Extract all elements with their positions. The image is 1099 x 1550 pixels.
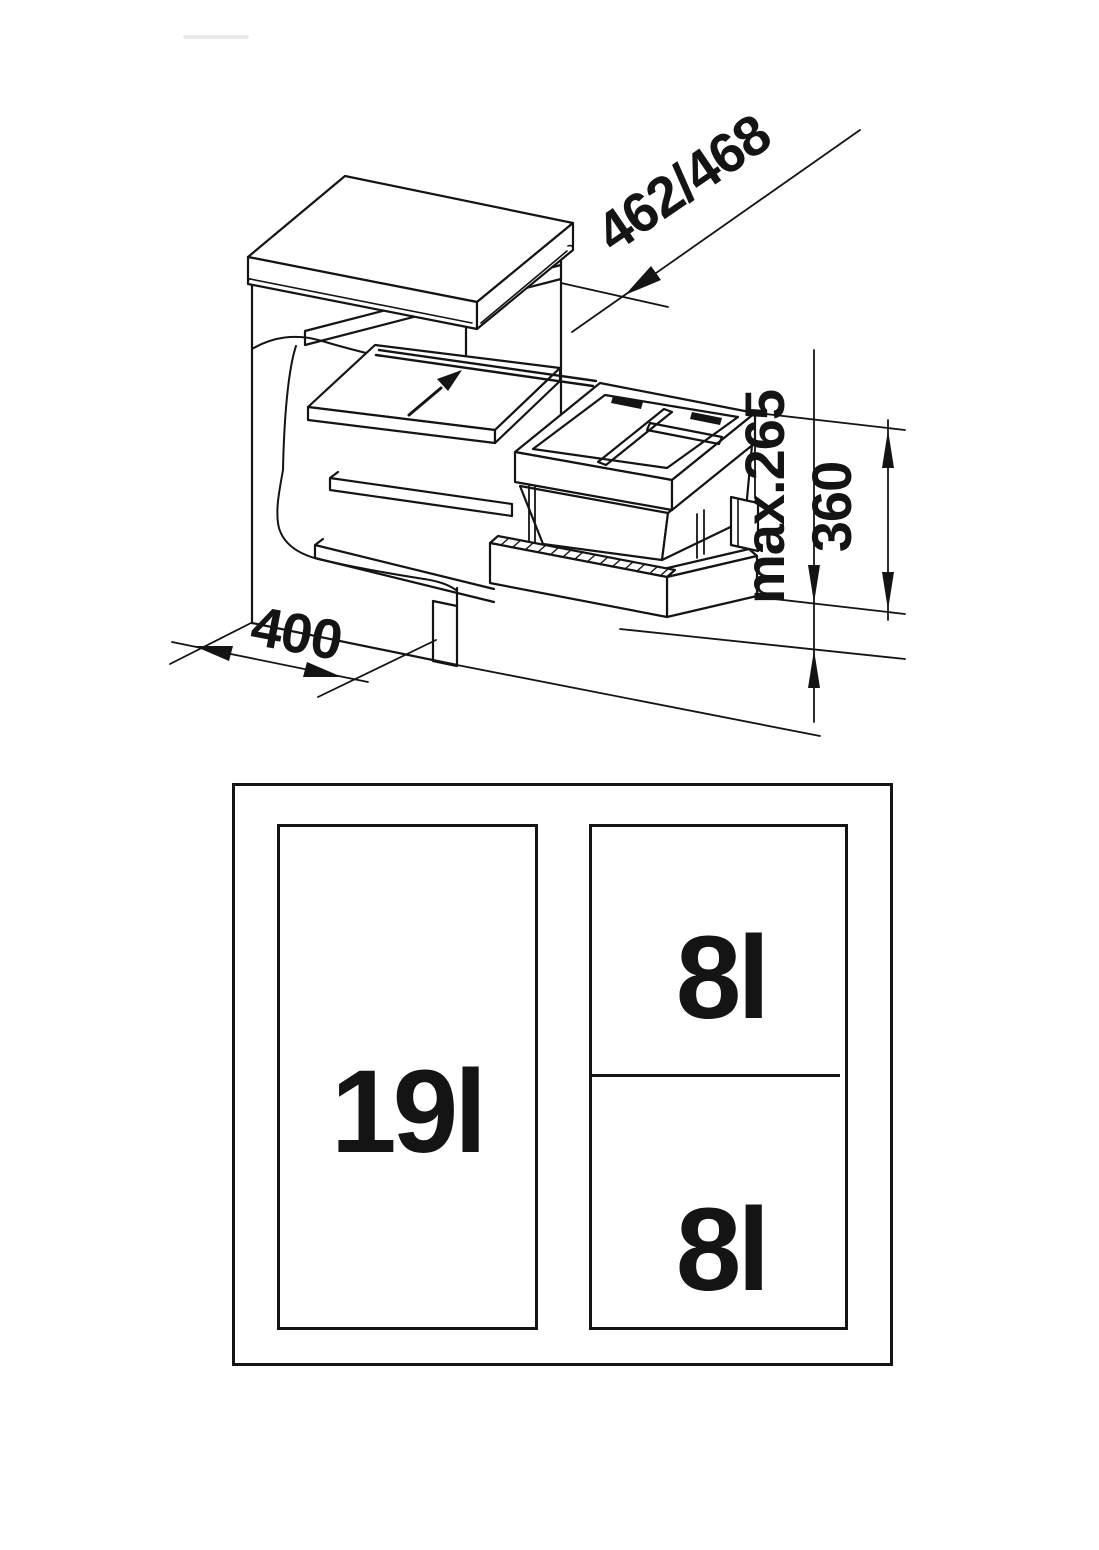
compartment-divider xyxy=(591,1074,840,1077)
interior-rails xyxy=(315,472,512,602)
dimension-width: 400 xyxy=(170,594,436,697)
waste-bin-unit xyxy=(490,383,758,617)
worktop xyxy=(248,176,573,329)
dimension-label-unit-height: 360 xyxy=(800,462,863,552)
dimension-label-depth: 462/468 xyxy=(585,102,782,265)
dimension-label-max-height: max.265 xyxy=(733,390,796,604)
capacity-label-bottom-right: 8l xyxy=(676,1191,766,1309)
diagram-page: 462/468 max.265 360 400 xyxy=(0,0,1099,1550)
capacity-label-top-right: 8l xyxy=(676,919,766,1037)
capacity-label-large: 19l xyxy=(331,1053,483,1171)
dimension-depth: 462/468 xyxy=(561,102,860,332)
isometric-drawing: 462/468 max.265 360 400 xyxy=(0,0,1099,775)
